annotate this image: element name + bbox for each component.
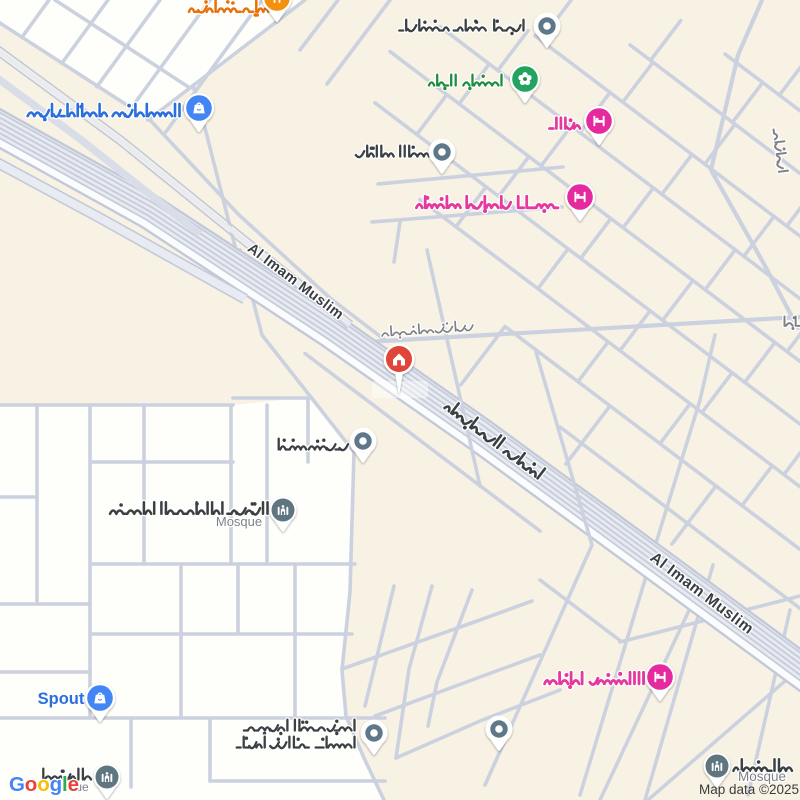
svg-text:Map data ©2025: Map data ©2025	[699, 782, 799, 797]
svg-text:Spout: Spout	[38, 690, 85, 708]
svg-text:Mosque: Mosque	[216, 514, 262, 529]
svg-text:g: g	[50, 773, 63, 796]
svg-text:e: e	[68, 773, 79, 796]
svg-text:o: o	[25, 773, 38, 796]
svg-text:G: G	[9, 773, 25, 796]
svg-text:o: o	[37, 773, 50, 796]
